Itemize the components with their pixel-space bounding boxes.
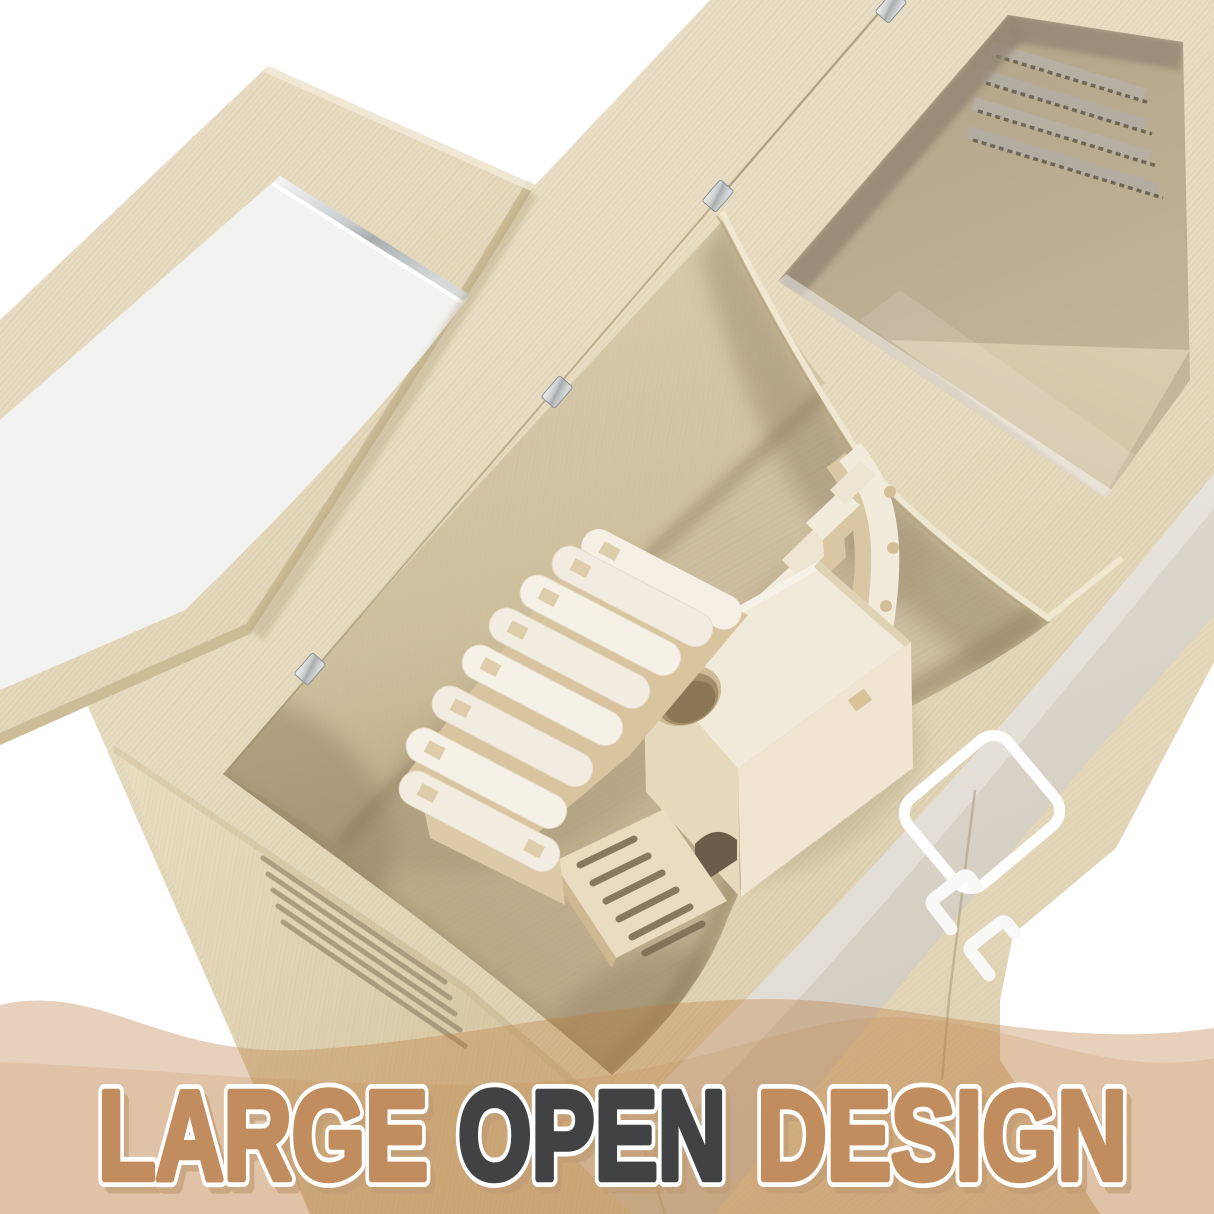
svg-text:OPEN: OPEN [458, 1065, 726, 1206]
svg-text:LARGE: LARGE [98, 1065, 428, 1206]
svg-text:DESIGN: DESIGN [757, 1065, 1127, 1206]
